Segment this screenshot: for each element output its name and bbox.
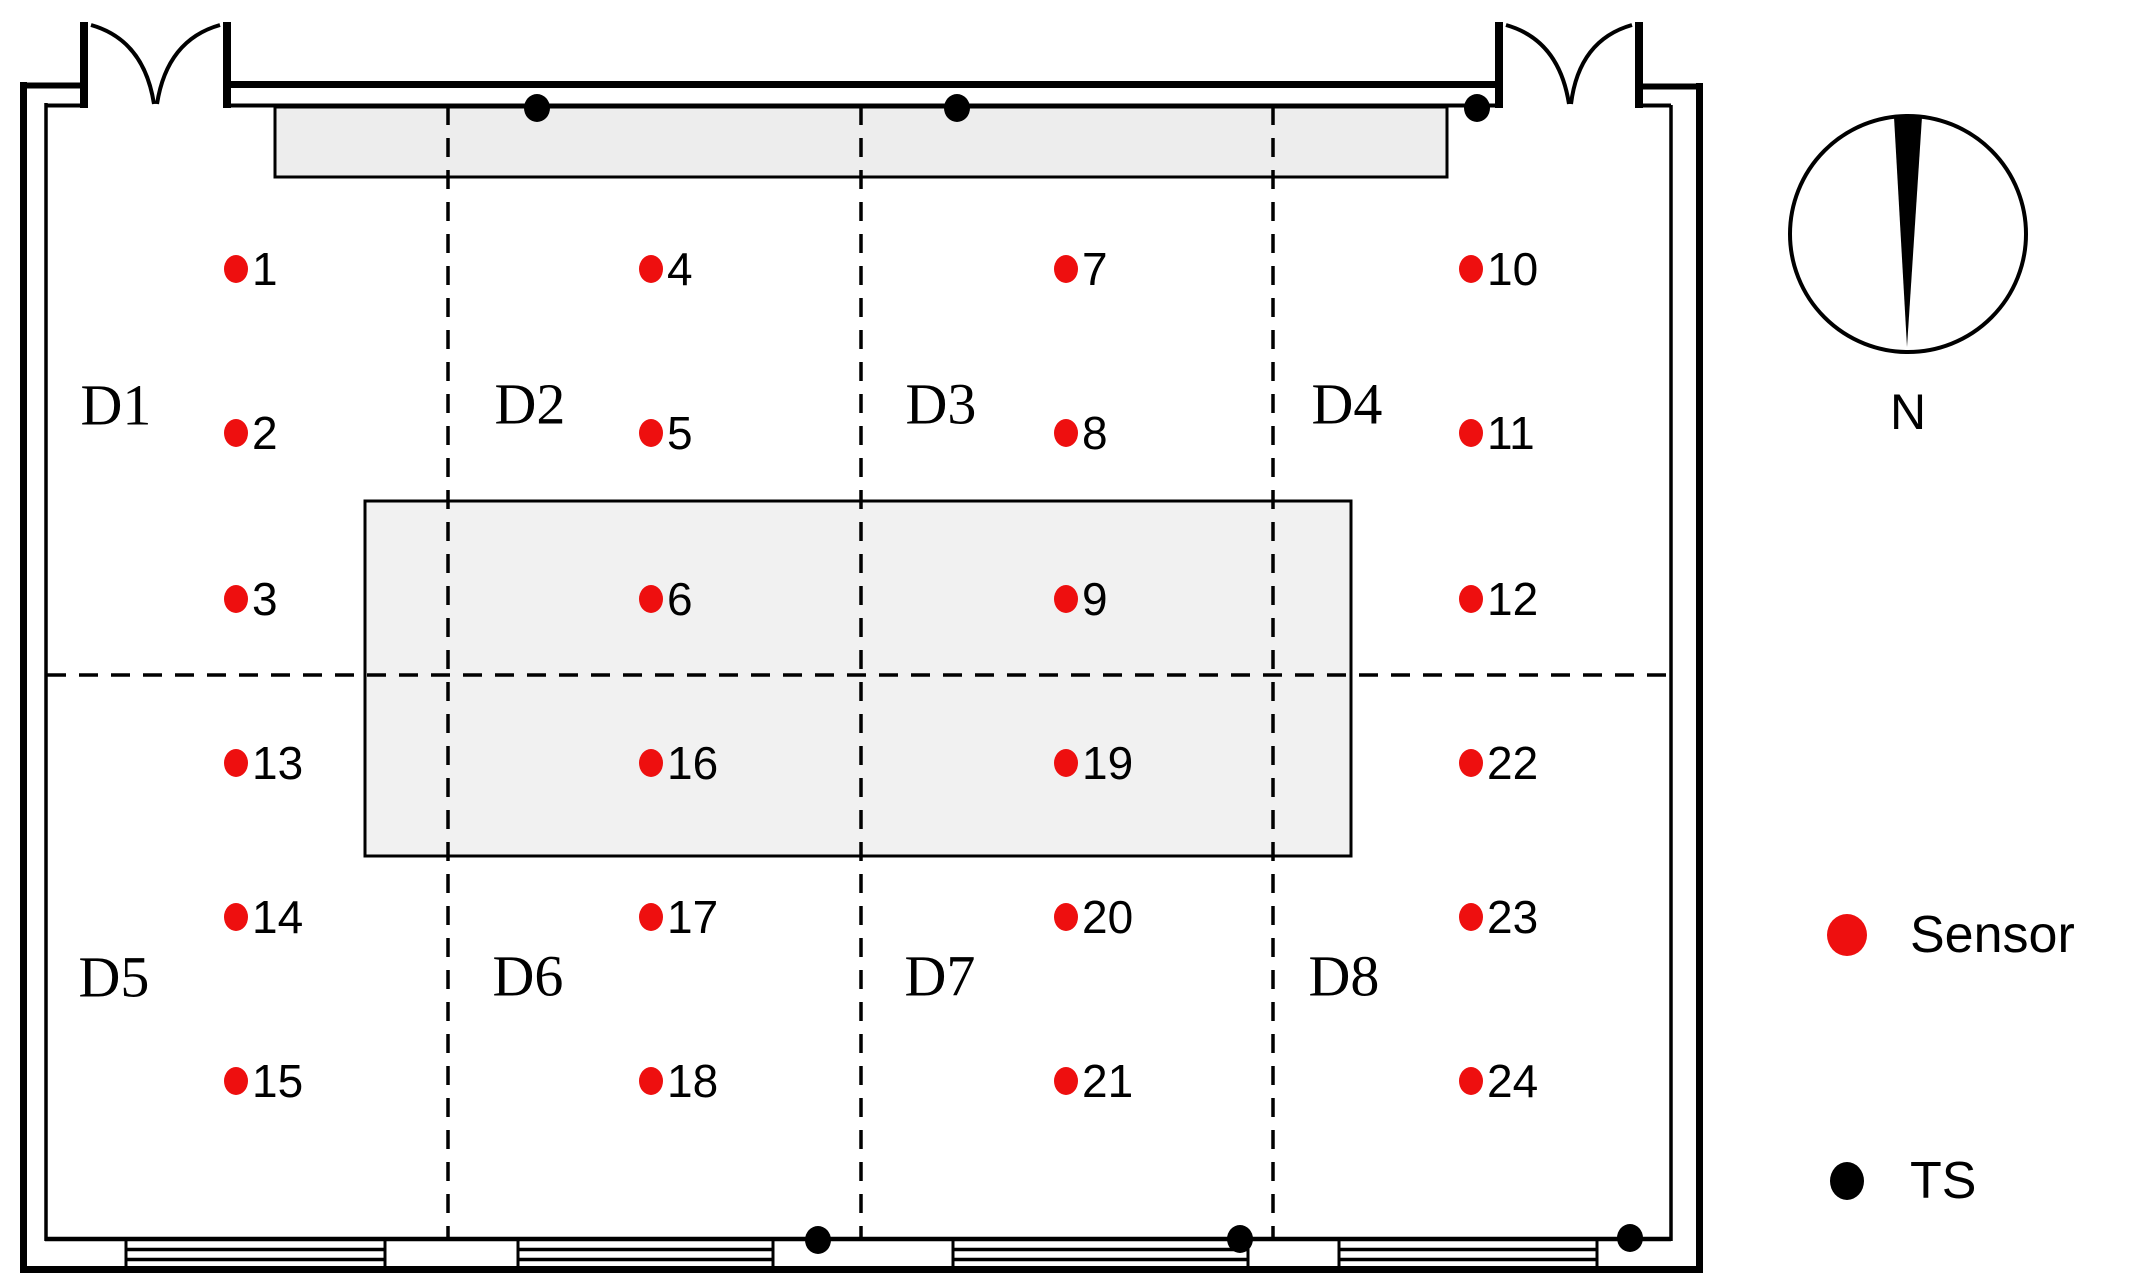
- sensor-number-5: 5: [667, 407, 693, 459]
- sensor-number-10: 10: [1487, 243, 1538, 295]
- ts-dot-4: [805, 1226, 831, 1254]
- zone-label-D4: D4: [1312, 372, 1383, 437]
- double-door-top-right: [1495, 22, 1643, 108]
- door-swing-arc: [1506, 25, 1569, 104]
- ts-dot-1: [524, 94, 550, 122]
- sensor-number-22: 22: [1487, 737, 1538, 789]
- zone-label-D1: D1: [81, 373, 152, 438]
- sensor-dot-19: [1054, 749, 1078, 777]
- sensor-dot-23: [1459, 903, 1483, 931]
- sensor-dot-10: [1459, 255, 1483, 283]
- sensor-number-14: 14: [252, 891, 303, 943]
- compass-north-needle: [1894, 117, 1922, 347]
- sensor-dot-18: [639, 1067, 663, 1095]
- legend-sensor-dot: [1827, 914, 1867, 956]
- sensor-number-12: 12: [1487, 573, 1538, 625]
- sensor-dot-17: [639, 903, 663, 931]
- sensor-dot-1: [224, 255, 248, 283]
- sensor-number-24: 24: [1487, 1055, 1538, 1107]
- sensor-number-18: 18: [667, 1055, 718, 1107]
- sensor-dot-7: [1054, 255, 1078, 283]
- sensor-number-9: 9: [1082, 573, 1108, 625]
- sensor-number-2: 2: [252, 407, 278, 459]
- door-post: [1635, 22, 1643, 108]
- door-post: [80, 22, 88, 108]
- ts-dot-5: [1227, 1225, 1253, 1253]
- legend-ts-dot: [1830, 1162, 1864, 1200]
- sensor-dot-9: [1054, 585, 1078, 613]
- legend-ts-label: TS: [1910, 1152, 1976, 1210]
- sensor-dot-13: [224, 749, 248, 777]
- floor-plan-page: N Sensor TS D1D2D3D4D5D6D7D8 12313141545…: [0, 0, 2129, 1286]
- sensor-dot-4: [639, 255, 663, 283]
- sensor-number-1: 1: [252, 243, 278, 295]
- legend: Sensor TS: [1827, 906, 2075, 1210]
- sensor-dot-12: [1459, 585, 1483, 613]
- sensor-dot-3: [224, 585, 248, 613]
- sensor-dot-20: [1054, 903, 1078, 931]
- sensor-number-11: 11: [1487, 407, 1535, 459]
- zone-label-D5: D5: [79, 945, 150, 1010]
- zone-label-D8: D8: [1309, 944, 1380, 1009]
- sensor-number-13: 13: [252, 737, 303, 789]
- sensor-dot-22: [1459, 749, 1483, 777]
- sensor-dot-24: [1459, 1067, 1483, 1095]
- sensor-dot-6: [639, 585, 663, 613]
- sensor-number-7: 7: [1082, 243, 1108, 295]
- sensor-dot-2: [224, 419, 248, 447]
- door-post: [1495, 22, 1503, 108]
- sensor-number-6: 6: [667, 573, 693, 625]
- sensor-dot-15: [224, 1067, 248, 1095]
- center-shaded-table-area: [365, 501, 1351, 856]
- sensor-number-3: 3: [252, 573, 278, 625]
- sensor-dot-21: [1054, 1067, 1078, 1095]
- sensor-dot-11: [1459, 419, 1483, 447]
- sensor-dot-14: [224, 903, 248, 931]
- window-mullions: [126, 1237, 1597, 1270]
- sensor-dot-5: [639, 419, 663, 447]
- sensor-number-16: 16: [667, 737, 718, 789]
- zone-label-D7: D7: [905, 944, 976, 1009]
- sensor-number-20: 20: [1082, 891, 1133, 943]
- zone-label-D2: D2: [495, 372, 566, 437]
- ts-dot-2: [944, 94, 970, 122]
- sensor-number-4: 4: [667, 243, 693, 295]
- double-door-top-left: [80, 22, 231, 108]
- door-post: [223, 22, 231, 108]
- sensor-number-15: 15: [252, 1055, 303, 1107]
- door-swing-arc: [1571, 25, 1632, 104]
- floor-plan-svg: N Sensor TS D1D2D3D4D5D6D7D8 12313141545…: [0, 0, 2129, 1286]
- sensor-number-8: 8: [1082, 407, 1108, 459]
- zone-label-D6: D6: [493, 944, 564, 1009]
- zone-label-D3: D3: [906, 372, 977, 437]
- sensor-number-21: 21: [1082, 1055, 1133, 1107]
- sensor-dot-16: [639, 749, 663, 777]
- sensor-number-19: 19: [1082, 737, 1133, 789]
- compass-north-label: N: [1890, 384, 1926, 440]
- sensor-number-17: 17: [667, 891, 718, 943]
- legend-sensor-label: Sensor: [1910, 906, 2075, 964]
- door-swing-arc: [91, 25, 154, 104]
- sensor-dot-8: [1054, 419, 1078, 447]
- compass: N: [1790, 116, 2026, 440]
- sensor-number-23: 23: [1487, 891, 1538, 943]
- ts-dot-6: [1617, 1224, 1643, 1252]
- bottom-windows: [126, 1237, 1597, 1270]
- ts-dot-3: [1464, 94, 1490, 122]
- door-swing-arc: [157, 25, 220, 104]
